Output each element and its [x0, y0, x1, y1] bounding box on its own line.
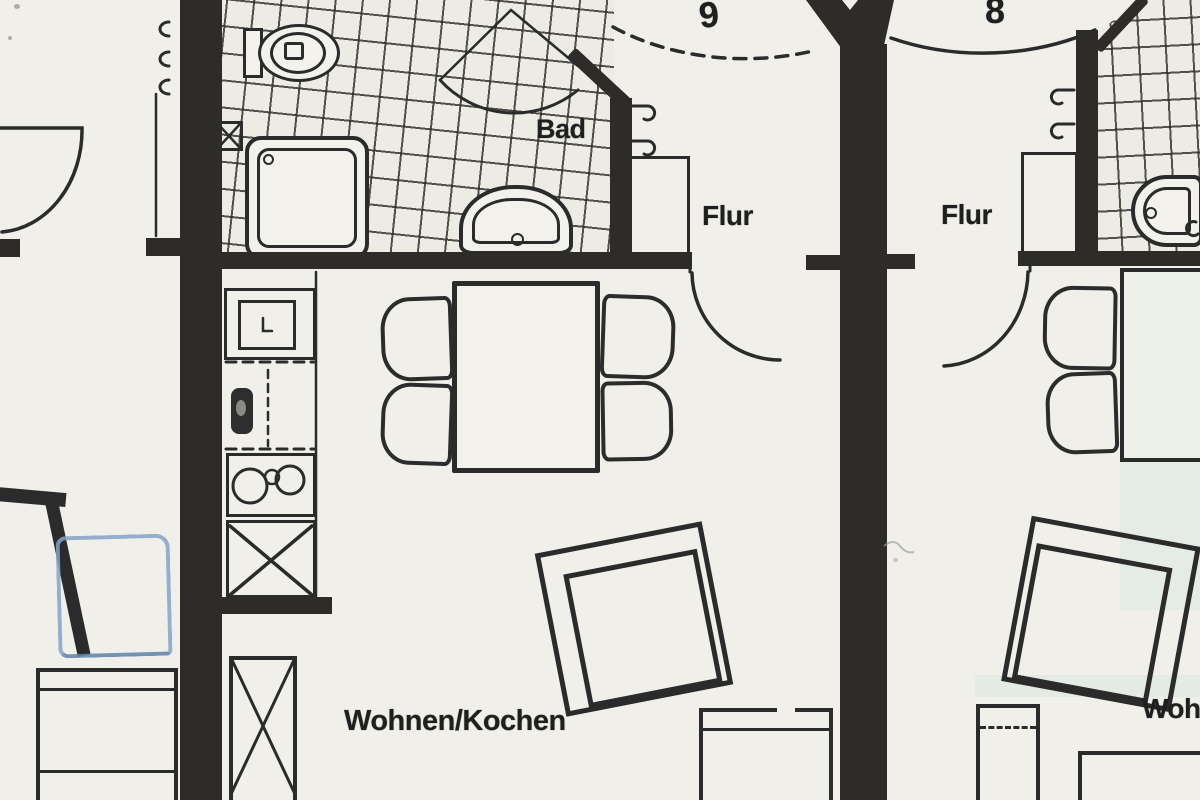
pencil-scribble: [884, 542, 914, 552]
room-label-living-right: Woh: [1142, 693, 1200, 725]
room-label-living-center: Wohnen/Kochen: [344, 705, 566, 738]
wall-hooks-left: [160, 22, 169, 94]
apartment-number-8: 8: [985, 0, 1005, 32]
room-label-hall-right: Flur: [941, 199, 992, 231]
room-label-hall-center: Flur: [702, 200, 753, 232]
wardrobe-x-cross: [232, 660, 294, 792]
floor-plan: Bad Flur Flur Wohnen/Kochen Woh 9 8: [0, 0, 1200, 800]
bath-door-fan-lines: [440, 10, 578, 80]
bath-door-arc: [440, 80, 578, 113]
stove-burner: [233, 469, 267, 503]
kitchen-tap: [263, 318, 272, 331]
plan-lines-overlay: [0, 0, 1200, 800]
apartment-number-9: 9: [697, 0, 721, 37]
wall-hooks-hall-center: [632, 106, 655, 155]
door-arc-living-center: [692, 273, 780, 360]
wall-hook-right-bath: [1187, 222, 1198, 236]
door-arc-living-right: [944, 272, 1028, 366]
cabinet-x-cross: [230, 526, 312, 595]
door-arc-left-apartment: [0, 128, 82, 232]
stove-burner: [276, 466, 304, 494]
vent-box-x: [218, 124, 240, 148]
wall-hooks-hall-right: [1051, 90, 1074, 138]
door-arc-apartment-8: [891, 30, 1095, 53]
room-label-bath: Bad: [536, 114, 586, 145]
